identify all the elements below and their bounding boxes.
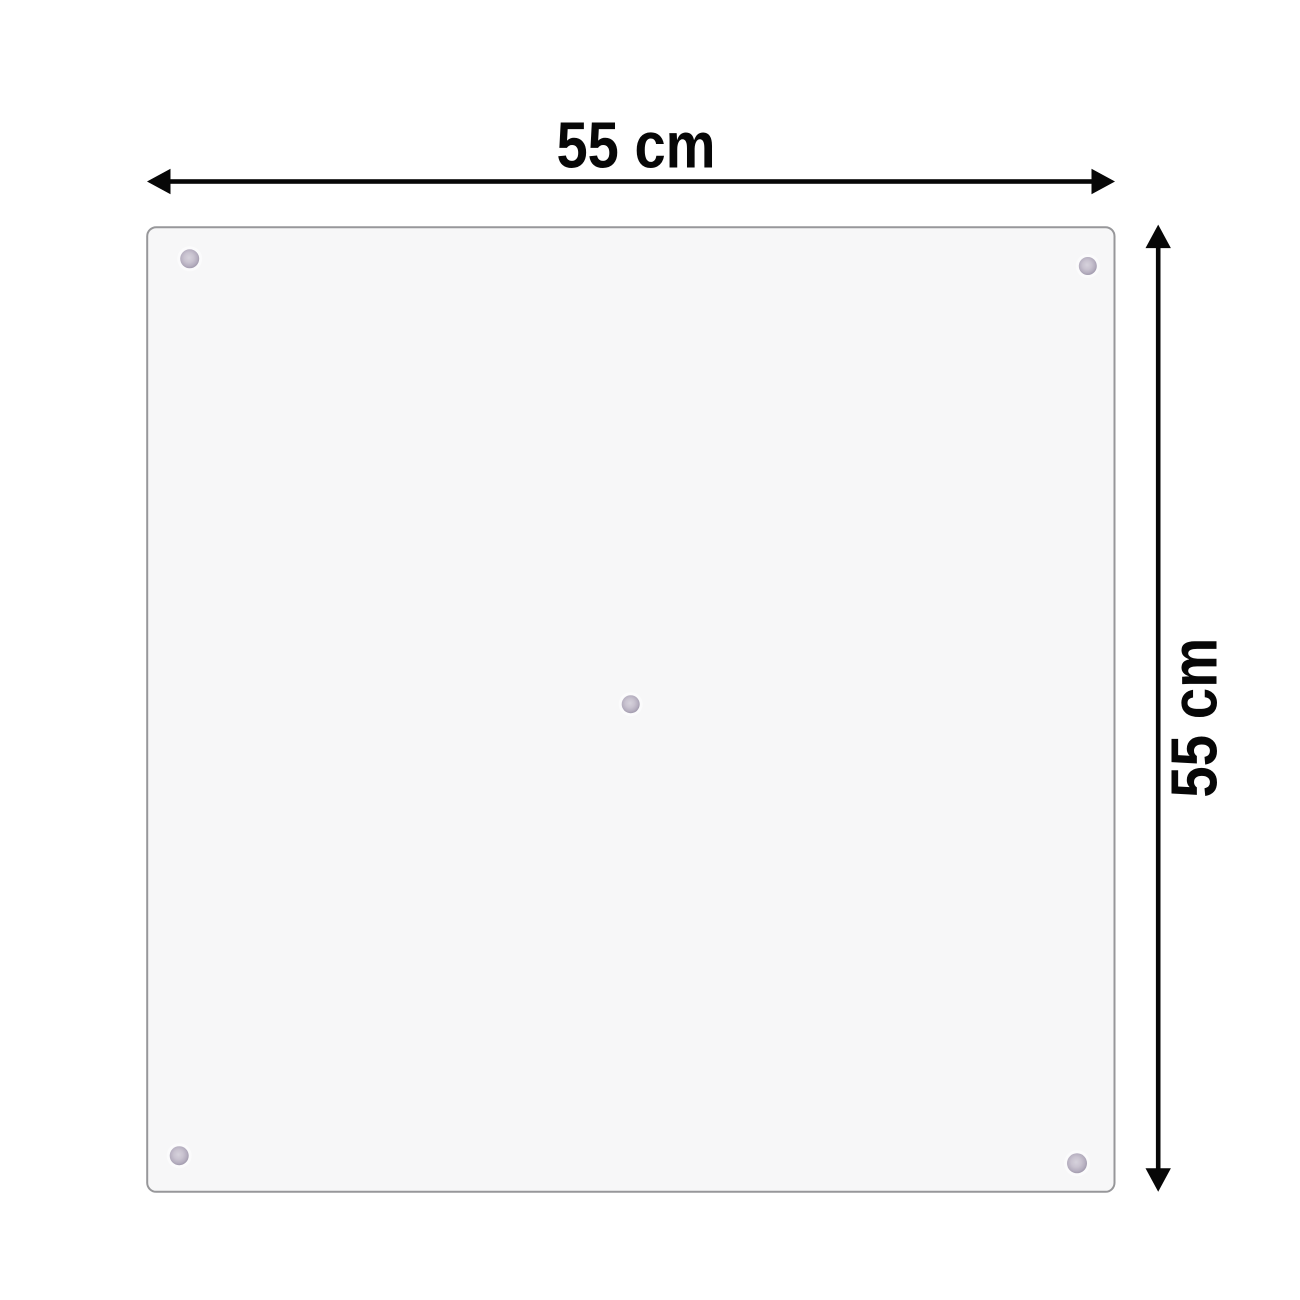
svg-text:55 cm: 55 cm <box>557 109 716 182</box>
svg-text:55 cm: 55 cm <box>1157 638 1230 798</box>
